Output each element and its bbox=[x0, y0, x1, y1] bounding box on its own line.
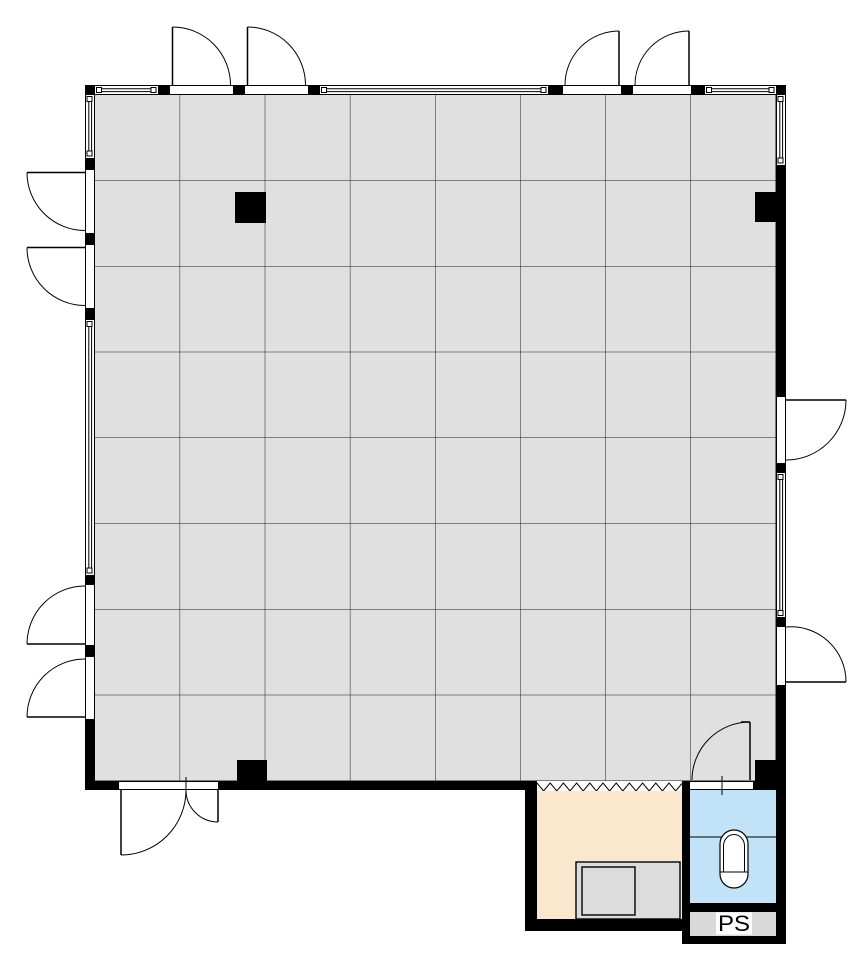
wall-mullion bbox=[691, 85, 705, 95]
door-swing-arc bbox=[786, 400, 846, 460]
tile-grid bbox=[95, 95, 776, 781]
window-end-cap bbox=[707, 88, 712, 93]
window-end-cap bbox=[778, 97, 783, 102]
window-end-cap bbox=[778, 611, 783, 616]
wall-annex-bottom bbox=[525, 919, 690, 931]
window-top-1 bbox=[95, 85, 158, 95]
window-top-2 bbox=[320, 85, 548, 95]
window-end-cap bbox=[97, 88, 102, 93]
ps-label: PS bbox=[718, 911, 750, 936]
door-sill bbox=[245, 85, 308, 95]
wall-mullion bbox=[776, 463, 786, 473]
wall-mullion bbox=[85, 233, 95, 245]
wall-mullion bbox=[308, 85, 320, 95]
door-swing-arc bbox=[173, 27, 231, 85]
window-left-1 bbox=[85, 95, 95, 158]
door-top-left-1 bbox=[173, 27, 231, 85]
window-end-cap bbox=[87, 151, 92, 156]
door-sill bbox=[633, 85, 691, 95]
door-swing-arc bbox=[635, 31, 689, 85]
window-right-1 bbox=[776, 95, 786, 165]
door-swing-arc bbox=[786, 627, 846, 682]
window-end-cap bbox=[87, 322, 92, 327]
door-left-lower-1 bbox=[27, 586, 85, 644]
squat-toilet-icon bbox=[720, 830, 748, 888]
wall-right-upper bbox=[776, 165, 786, 397]
door-swing-arc bbox=[27, 586, 85, 644]
wall-annex-left bbox=[525, 781, 537, 931]
wall-mullion bbox=[85, 308, 95, 320]
door-top-right-2 bbox=[635, 31, 689, 85]
wall-mullion bbox=[548, 85, 563, 95]
door-sill bbox=[776, 397, 786, 463]
door-sill bbox=[563, 85, 621, 95]
wall-mullion bbox=[621, 85, 633, 95]
door-right-lower bbox=[786, 627, 846, 682]
window-end-cap bbox=[87, 97, 92, 102]
wall-bottom-mid bbox=[218, 781, 537, 790]
wall-mullion bbox=[85, 575, 95, 585]
toilet-bowl-outline bbox=[720, 830, 748, 888]
floor-plan-page: PS bbox=[0, 0, 865, 972]
door-swing-arc bbox=[121, 790, 186, 855]
zigzag-break-line bbox=[537, 781, 682, 792]
wall-mullion bbox=[85, 158, 95, 170]
window-end-cap bbox=[541, 88, 546, 93]
wall-ps-bottom bbox=[682, 936, 786, 944]
window-end-cap bbox=[778, 158, 783, 163]
window-end-cap bbox=[322, 88, 327, 93]
door-sill bbox=[85, 245, 95, 308]
door-sill bbox=[85, 170, 95, 233]
column-freestanding bbox=[235, 192, 266, 223]
wall-toilet-ps-divider bbox=[690, 903, 776, 912]
door-swing-arc bbox=[565, 31, 619, 85]
door-top-left-2 bbox=[248, 27, 306, 85]
window-end-cap bbox=[151, 88, 156, 93]
door-swing-arc bbox=[248, 27, 306, 85]
window-end-cap bbox=[87, 568, 92, 573]
door-right-upper bbox=[786, 400, 846, 460]
pipe-shaft: PS bbox=[690, 911, 776, 936]
main-hall-floor bbox=[95, 95, 776, 781]
wall-mullion bbox=[233, 85, 245, 95]
wall-bottom-left bbox=[85, 781, 119, 790]
door-left-lower-2 bbox=[27, 659, 85, 717]
window-top-3 bbox=[705, 85, 776, 95]
door-swing-arc bbox=[27, 248, 85, 306]
window-right-2 bbox=[776, 473, 786, 617]
floor-plan-svg: PS bbox=[0, 0, 865, 972]
door-sill bbox=[85, 657, 95, 719]
door-sill bbox=[85, 585, 95, 645]
wall-toilet-left bbox=[682, 781, 690, 944]
wall-mullion bbox=[85, 645, 95, 657]
door-swing-arc bbox=[27, 173, 85, 231]
column-right-wall bbox=[755, 192, 776, 222]
door-left-upper-1 bbox=[27, 173, 85, 231]
door-left-upper-2 bbox=[27, 248, 85, 306]
wall-mullion bbox=[776, 617, 786, 627]
wall-left-lower bbox=[85, 719, 95, 790]
service-annex bbox=[537, 791, 682, 919]
wall-mullion bbox=[158, 85, 170, 95]
door-sill bbox=[170, 85, 233, 95]
window-end-cap bbox=[769, 88, 774, 93]
window-left-2 bbox=[85, 320, 95, 575]
door-sill bbox=[776, 627, 786, 685]
window-end-cap bbox=[778, 475, 783, 480]
wall-corner-tr bbox=[776, 85, 786, 95]
door-top-right-1 bbox=[565, 31, 619, 85]
wall-corner-tl bbox=[85, 85, 95, 95]
wall-right-lower bbox=[776, 685, 786, 944]
door-swing-arc bbox=[27, 659, 85, 717]
entrance-door-sill bbox=[119, 781, 218, 790]
column-bottom-wall bbox=[237, 760, 267, 781]
door-swing-arc bbox=[186, 790, 218, 822]
column-toilet-corner bbox=[755, 760, 776, 788]
counter-sink bbox=[582, 867, 635, 915]
